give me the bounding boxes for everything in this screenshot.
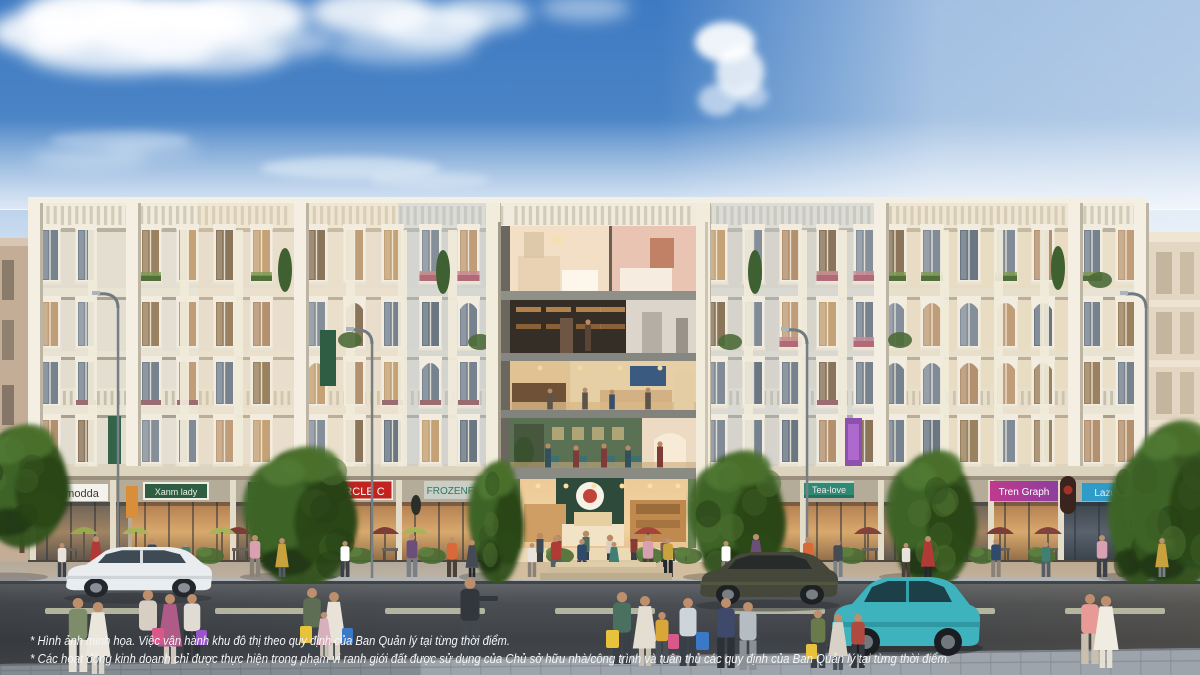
- svg-text:Xanm lady: Xanm lady: [155, 487, 198, 497]
- svg-text:Tea-love: Tea-love: [812, 485, 846, 495]
- svg-text:modda: modda: [65, 488, 100, 500]
- svg-text:* Các hoạt động kinh doanh chỉ: * Các hoạt động kinh doanh chỉ được thực…: [30, 652, 950, 666]
- svg-text:* Hình ảnh minh họa. Việc vận: * Hình ảnh minh họa. Việc vận hành khu đ…: [30, 634, 510, 648]
- svg-text:Tren Graph: Tren Graph: [999, 487, 1050, 498]
